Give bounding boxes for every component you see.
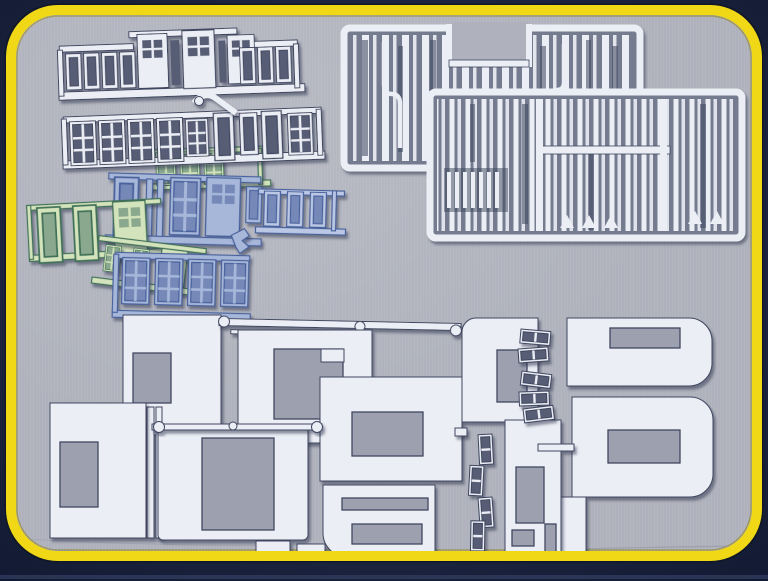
window-frame (37, 207, 63, 263)
window-frame (264, 191, 281, 226)
trim-sprue-lower (430, 92, 742, 238)
comb-tooth (471, 172, 475, 208)
sprue-end-bar (331, 191, 336, 231)
door-opening (202, 438, 274, 530)
window-frame (127, 119, 155, 164)
door-panel (137, 33, 169, 88)
window-frame (69, 121, 97, 166)
comb-tooth (495, 172, 499, 208)
divider-strip (536, 99, 543, 231)
mini-frame (470, 521, 485, 551)
hook-joint (195, 97, 204, 106)
runner-nub (229, 422, 237, 430)
sprue-post (156, 179, 163, 236)
trim-gap (362, 40, 368, 156)
window-frame (120, 52, 136, 89)
divider-strip (660, 99, 667, 231)
window-frame (154, 258, 183, 305)
model-kit-photo (0, 0, 768, 581)
comb-tooth (447, 172, 451, 208)
mini-frame (478, 434, 494, 465)
window-frame (239, 47, 255, 84)
mini-frame (519, 391, 549, 406)
frame-notch (452, 22, 526, 64)
window-frame (169, 178, 200, 236)
trim-gap (522, 104, 528, 224)
runner-nub (154, 422, 165, 433)
window-opening (133, 353, 171, 403)
wall-panel-mid-right (320, 377, 462, 481)
window-frame (98, 120, 126, 165)
window-frame (156, 117, 184, 162)
wall-panel-top-right (567, 318, 712, 386)
sprue-end-bar (293, 44, 300, 88)
slot-opening (342, 498, 428, 510)
mini-frame (518, 347, 549, 363)
wall-panel-center (158, 427, 308, 540)
door-panel (182, 30, 216, 89)
sprue-gap (170, 40, 181, 85)
runner-leg (560, 497, 586, 555)
opening-notch-tab (321, 349, 344, 362)
mini-frame (468, 465, 484, 496)
window-frame (66, 53, 82, 90)
window-frame (287, 192, 304, 227)
slot-opening (352, 524, 422, 544)
sprue-end-bar (112, 254, 119, 312)
photo-stage (0, 0, 768, 581)
small-opening (545, 524, 556, 552)
runner-bar (455, 428, 467, 436)
window-frame (121, 257, 150, 304)
window-frame (257, 47, 273, 84)
door-frame (261, 111, 283, 159)
bottom-edge-strip (0, 575, 768, 579)
comb-tooth (455, 172, 459, 208)
window-frame (102, 52, 118, 89)
window-frame (220, 260, 249, 307)
notch-shelf (449, 60, 529, 67)
wall-panel-left (50, 403, 146, 538)
sprue-gap (218, 40, 226, 82)
mini-frame (520, 371, 551, 389)
window-frame (275, 46, 291, 83)
runner-nub (218, 316, 229, 327)
comb-tooth (463, 172, 467, 208)
wall-panel (323, 485, 435, 557)
runner-bar (538, 444, 574, 451)
trim-gap (700, 104, 706, 228)
blue-sprue-extension (255, 189, 346, 235)
comb-tooth (479, 172, 483, 208)
window-frame (84, 53, 100, 90)
photo-content (16, 15, 752, 558)
door-frame (213, 113, 235, 161)
door-panel (205, 178, 240, 237)
mini-frame (520, 329, 551, 346)
door-opening (516, 467, 544, 523)
window-frame (287, 112, 313, 155)
sprue-end-bar (57, 50, 64, 96)
door-frame (239, 113, 258, 155)
window-frame (185, 119, 209, 157)
trim-gap (470, 104, 475, 162)
sprue-end-bar (316, 109, 323, 155)
runner-nub (312, 422, 323, 433)
window-opening (608, 430, 680, 463)
window-frame (310, 192, 327, 227)
small-opening (512, 530, 534, 546)
window-opening (610, 328, 680, 348)
mini-frame (523, 405, 554, 423)
window-opening (352, 412, 423, 456)
window-frame (187, 259, 216, 306)
sprue-end-bar (61, 119, 68, 165)
comb-tooth (487, 172, 491, 208)
window-opening (60, 442, 98, 507)
inner-cross-bar (540, 146, 670, 154)
runner-nub (450, 325, 461, 336)
window-frame (73, 205, 99, 261)
wall-panel-curved (323, 485, 435, 557)
